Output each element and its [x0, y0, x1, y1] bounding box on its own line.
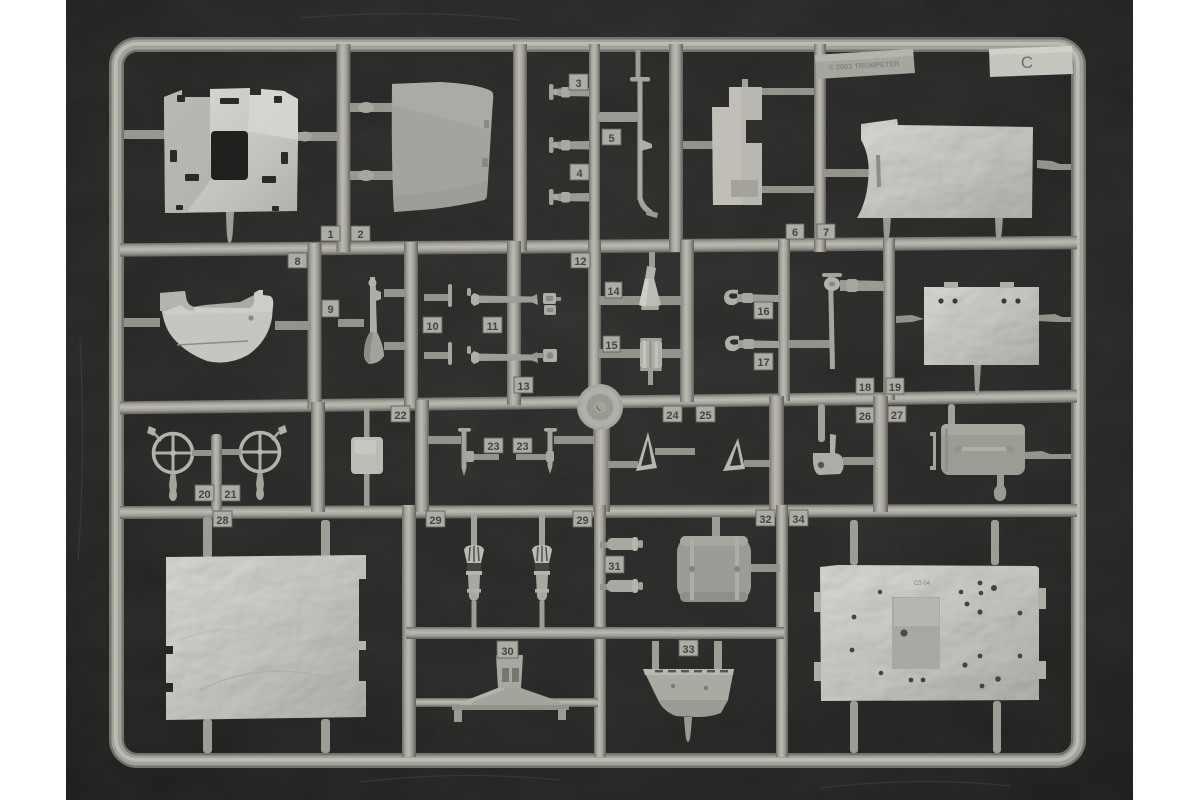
svg-text:18: 18 — [859, 382, 871, 394]
svg-text:13: 13 — [517, 381, 529, 393]
svg-text:32: 32 — [759, 514, 771, 526]
svg-text:1: 1 — [327, 229, 333, 241]
svg-text:17: 17 — [757, 357, 769, 369]
svg-text:15: 15 — [605, 340, 617, 352]
svg-text:12: 12 — [574, 256, 586, 268]
svg-text:3: 3 — [575, 78, 581, 90]
svg-text:14: 14 — [607, 286, 620, 298]
svg-text:33: 33 — [682, 644, 694, 656]
svg-text:16: 16 — [757, 306, 769, 318]
svg-text:C: C — [1021, 53, 1033, 72]
svg-text:2: 2 — [357, 229, 363, 241]
svg-text:30: 30 — [501, 646, 513, 658]
svg-text:24: 24 — [666, 410, 679, 422]
svg-text:C3 04: C3 04 — [914, 581, 931, 587]
svg-text:7: 7 — [823, 227, 829, 239]
svg-text:25: 25 — [699, 410, 711, 422]
svg-text:27: 27 — [891, 410, 903, 422]
svg-text:29: 29 — [576, 515, 588, 527]
svg-text:28: 28 — [216, 515, 228, 527]
svg-text:21: 21 — [224, 489, 236, 501]
svg-text:22: 22 — [394, 410, 406, 422]
svg-text:6: 6 — [792, 227, 798, 239]
svg-text:34: 34 — [792, 514, 805, 526]
svg-text:20: 20 — [198, 489, 210, 501]
svg-text:23: 23 — [487, 441, 499, 453]
svg-text:23: 23 — [516, 441, 528, 453]
svg-text:5: 5 — [608, 133, 614, 145]
svg-text:8: 8 — [294, 256, 300, 268]
svg-text:9: 9 — [327, 304, 333, 316]
svg-text:29: 29 — [429, 515, 441, 527]
svg-text:11: 11 — [487, 321, 499, 333]
svg-text:10: 10 — [426, 321, 438, 333]
svg-text:31: 31 — [608, 561, 620, 573]
svg-text:26: 26 — [859, 411, 871, 423]
svg-text:4: 4 — [576, 168, 583, 180]
svg-text:19: 19 — [889, 382, 901, 394]
